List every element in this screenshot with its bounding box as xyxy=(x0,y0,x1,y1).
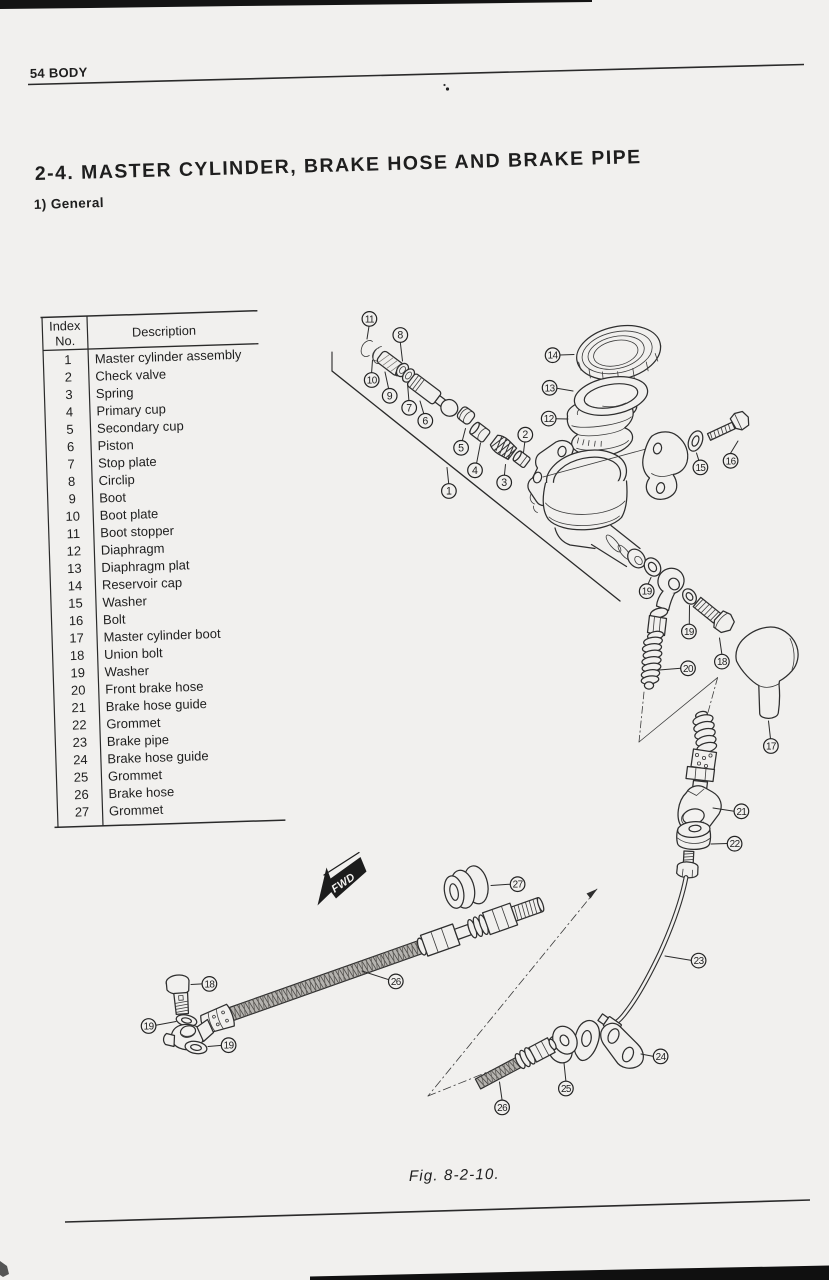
svg-text:9: 9 xyxy=(387,390,393,402)
svg-text:25: 25 xyxy=(561,1084,572,1095)
svg-text:Grommet: Grommet xyxy=(109,802,164,819)
svg-text:15: 15 xyxy=(68,595,83,610)
svg-text:23: 23 xyxy=(72,735,87,750)
svg-text:4: 4 xyxy=(66,404,74,419)
svg-text:Union bolt: Union bolt xyxy=(104,645,163,662)
svg-text:Boot plate: Boot plate xyxy=(100,506,159,523)
svg-text:10: 10 xyxy=(65,508,80,523)
svg-text:7: 7 xyxy=(67,456,75,471)
svg-text:Boot stopper: Boot stopper xyxy=(100,523,175,540)
svg-text:2: 2 xyxy=(522,429,528,441)
svg-text:11: 11 xyxy=(365,314,375,325)
svg-text:20: 20 xyxy=(683,664,694,675)
svg-text:18: 18 xyxy=(70,648,85,663)
svg-text:18: 18 xyxy=(204,979,215,990)
svg-text:Brake hose guide: Brake hose guide xyxy=(107,748,209,766)
svg-text:16: 16 xyxy=(69,613,84,628)
svg-text:Brake pipe: Brake pipe xyxy=(107,732,170,749)
svg-text:Description: Description xyxy=(132,323,196,340)
svg-text:Brake hose guide: Brake hose guide xyxy=(106,696,208,714)
svg-text:19: 19 xyxy=(224,1041,235,1052)
svg-text:19: 19 xyxy=(144,1022,155,1033)
svg-text:11: 11 xyxy=(66,526,80,541)
svg-text:24: 24 xyxy=(656,1052,667,1063)
svg-text:10: 10 xyxy=(367,376,378,387)
svg-text:Washer: Washer xyxy=(104,663,149,679)
svg-text:16: 16 xyxy=(726,456,737,467)
svg-text:Check valve: Check valve xyxy=(95,367,166,384)
svg-text:26: 26 xyxy=(74,787,89,802)
svg-text:Front brake hose: Front brake hose xyxy=(105,679,204,697)
svg-text:12: 12 xyxy=(66,543,81,558)
svg-text:13: 13 xyxy=(67,561,82,576)
svg-text:Brake hose: Brake hose xyxy=(108,784,174,801)
svg-text:54 BODY: 54 BODY xyxy=(30,64,88,81)
svg-text:14: 14 xyxy=(67,578,82,593)
svg-text:Secondary cup: Secondary cup xyxy=(97,418,184,436)
svg-text:21: 21 xyxy=(736,807,747,818)
svg-text:3: 3 xyxy=(65,387,73,402)
svg-text:Fig. 8-2-10.: Fig. 8-2-10. xyxy=(409,1166,500,1185)
svg-text:17: 17 xyxy=(69,630,84,645)
svg-text:19: 19 xyxy=(684,627,695,638)
svg-text:Index: Index xyxy=(49,318,81,334)
svg-text:Bolt: Bolt xyxy=(103,612,126,628)
svg-text:Piston: Piston xyxy=(97,437,134,453)
svg-text:5: 5 xyxy=(66,422,74,437)
svg-text:22: 22 xyxy=(72,717,87,732)
svg-text:Circlip: Circlip xyxy=(98,472,135,488)
svg-text:Spring: Spring xyxy=(96,385,134,401)
svg-text:12: 12 xyxy=(544,414,554,425)
svg-text:8: 8 xyxy=(397,330,403,342)
svg-text:9: 9 xyxy=(68,491,76,506)
svg-text:24: 24 xyxy=(73,752,88,767)
svg-text:26: 26 xyxy=(497,1103,508,1114)
svg-text:1) General: 1) General xyxy=(34,195,104,212)
svg-text:17: 17 xyxy=(766,742,776,753)
svg-text:2: 2 xyxy=(65,369,73,384)
svg-text:Washer: Washer xyxy=(102,593,147,609)
svg-text:21: 21 xyxy=(71,700,86,715)
svg-text:1: 1 xyxy=(446,486,452,498)
svg-text:15: 15 xyxy=(695,463,706,474)
svg-text:6: 6 xyxy=(67,439,75,454)
svg-text:20: 20 xyxy=(71,682,86,697)
svg-text:8: 8 xyxy=(68,474,76,489)
svg-text:Grommet: Grommet xyxy=(108,767,163,784)
svg-text:27: 27 xyxy=(513,880,523,891)
svg-text:1: 1 xyxy=(64,352,72,367)
svg-text:27: 27 xyxy=(75,804,90,819)
svg-text:Diaphragm plat: Diaphragm plat xyxy=(101,557,190,575)
svg-text:Boot: Boot xyxy=(99,490,127,506)
svg-text:Reservoir cap: Reservoir cap xyxy=(102,575,183,593)
svg-text:3: 3 xyxy=(501,477,507,489)
svg-text:Grommet: Grommet xyxy=(106,715,161,732)
svg-text:13: 13 xyxy=(545,383,556,394)
svg-text:Diaphragm: Diaphragm xyxy=(101,541,165,558)
svg-text:7: 7 xyxy=(406,402,412,414)
svg-text:19: 19 xyxy=(70,665,85,680)
svg-text:No.: No. xyxy=(55,333,75,349)
svg-text:4: 4 xyxy=(472,465,478,477)
svg-text:Stop plate: Stop plate xyxy=(98,454,157,471)
svg-text:26: 26 xyxy=(391,977,402,988)
svg-text:22: 22 xyxy=(730,839,740,850)
svg-text:19: 19 xyxy=(642,587,653,598)
svg-text:18: 18 xyxy=(717,657,728,668)
svg-text:14: 14 xyxy=(548,351,559,362)
svg-text:23: 23 xyxy=(694,956,705,967)
svg-text:5: 5 xyxy=(458,442,464,454)
svg-text:6: 6 xyxy=(422,415,428,427)
svg-text:Primary cup: Primary cup xyxy=(96,401,166,418)
svg-text:25: 25 xyxy=(73,769,88,784)
